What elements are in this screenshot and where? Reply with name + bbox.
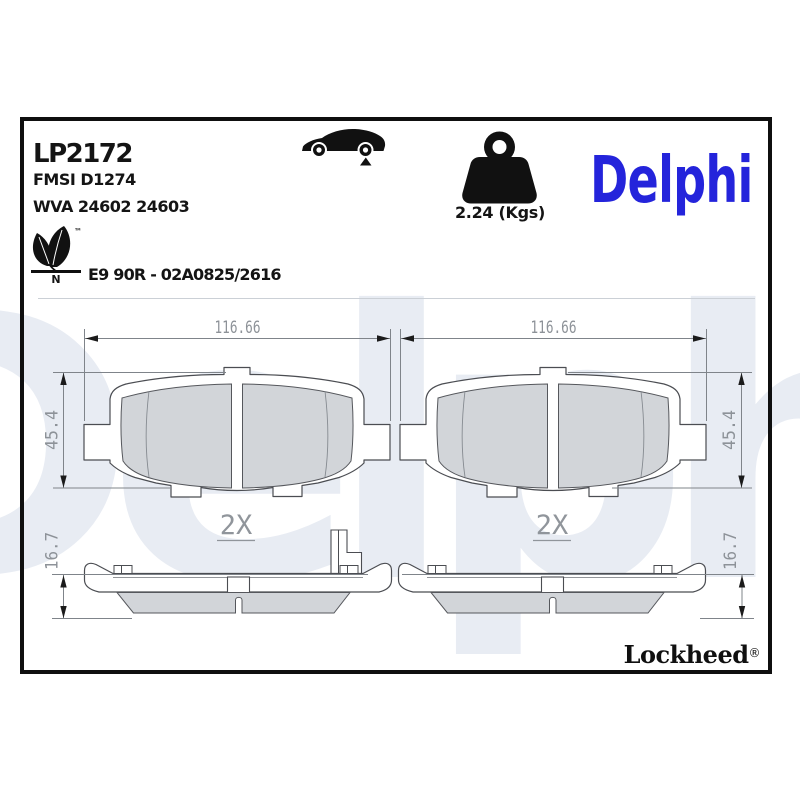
- registered-trademark-symbol: ®: [749, 646, 761, 660]
- rear-hub: [363, 147, 368, 152]
- header-divider-line: [38, 298, 755, 299]
- front-hub: [316, 147, 321, 152]
- delphi-logo: Delphi: [590, 149, 753, 213]
- wva-reference: WVA 24602 24603: [33, 197, 189, 216]
- ece-homologation-number: E9 90R - 02A0825/2616: [88, 265, 281, 284]
- rear-axle-marker-triangle: [360, 158, 372, 166]
- eco-trademark-symbol: ™: [74, 227, 82, 236]
- part-number: LP2172: [33, 139, 132, 170]
- brake-pad-datasheet: Delphi LP2172 FMSI D1274 WVA 24602 24603…: [0, 0, 800, 800]
- weight-icon: [456, 128, 546, 208]
- weight-handle-hole: [493, 140, 507, 154]
- weight-body: [462, 157, 537, 204]
- lockheed-logo-text: Lockheed: [624, 640, 749, 669]
- car-rear-axle-icon: [296, 120, 392, 172]
- fmsi-reference: FMSI D1274: [33, 170, 136, 189]
- eco-label-letter: N: [31, 273, 81, 286]
- delphi-watermark: Delphi: [0, 265, 800, 635]
- lockheed-logo: Lockheed®: [624, 640, 760, 669]
- leaf-right: [48, 226, 70, 267]
